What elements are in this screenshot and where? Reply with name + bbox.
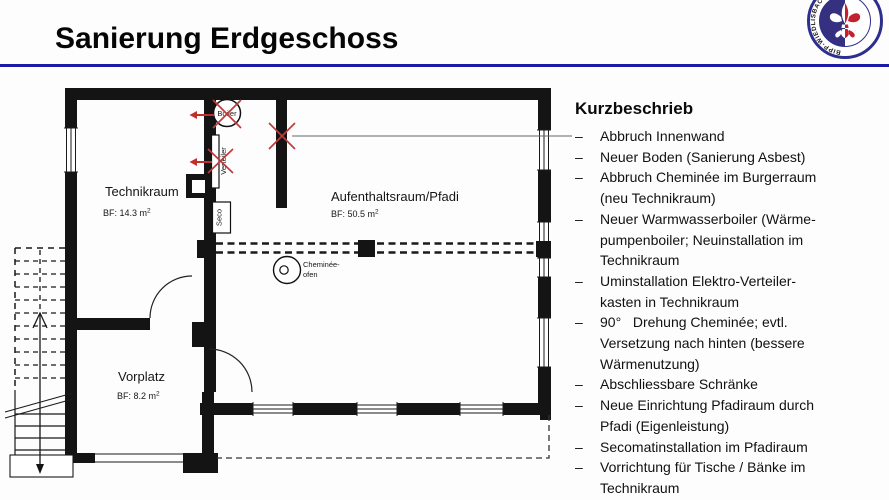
title-rule <box>0 64 889 67</box>
beam-dashed-line <box>197 240 551 258</box>
dash-bullet: – <box>575 271 583 292</box>
page-title: Sanierung Erdgeschoss <box>55 20 398 58</box>
list-item-text: Neue Einrichtung Pfadiraum durch Pfadi (… <box>600 397 814 434</box>
windows-bottom-wall <box>253 402 503 416</box>
dash-bullet: – <box>575 437 583 458</box>
list-item: –Neuer Boden (Sanierung Asbest) <box>573 147 887 168</box>
dash-bullet: – <box>575 312 583 333</box>
list-item: –Neuer Warmwasserboiler (Wärme- pumpenbo… <box>573 209 887 271</box>
cheminee-label-line2: ofen <box>303 270 318 279</box>
list-item-text: Abschliessbare Schränke <box>600 376 758 392</box>
room-labels: Technikraum BF: 14.3 m2 Aufenthaltsraum/… <box>103 184 459 401</box>
dash-bullet: – <box>575 167 583 188</box>
door-arc-technikraum <box>150 276 192 318</box>
list-item-text: Vorrichtung für Tische / Bänke im Techni… <box>600 459 805 496</box>
list-item: –Vorrichtung für Tische / Bänke im Techn… <box>573 457 887 498</box>
dash-bullet: – <box>575 395 583 416</box>
dash-bullet: – <box>575 126 583 147</box>
scout-badge-logo: BIPP-WIEDLISBACH <box>803 0 887 62</box>
room-area-technikraum: BF: 14.3 m2 <box>103 208 151 219</box>
slide: Sanierung Erdgeschoss BIPP-WIEDLISBACH <box>0 0 889 500</box>
list-item-text: Secomatinstallation im Pfadiraum <box>600 439 808 455</box>
list-item-text: 90° Drehung Cheminée; evtl. Versetzung n… <box>600 314 805 371</box>
list-item: –90° Drehung Cheminée; evtl. Versetzung … <box>573 312 887 374</box>
room-area-aufenthaltsraum: BF: 50.5 m2 <box>331 209 379 220</box>
kurzbeschrieb-heading: Kurzbeschrieb <box>575 98 887 120</box>
list-item: –Abschliessbare Schränke <box>573 374 887 395</box>
staircase <box>5 248 73 477</box>
cheminee-label-line1: Cheminée- <box>303 260 340 269</box>
seco-label: Seco <box>215 209 224 226</box>
floor-plan: Boiler Verteiler Seco Cheminée- ofen Tec… <box>0 80 572 500</box>
dash-bullet: – <box>575 147 583 168</box>
kurzbeschrieb-panel: Kurzbeschrieb –Abbruch Innenwand –Neuer … <box>573 98 887 499</box>
list-item-text: Abbruch Innenwand <box>600 128 725 144</box>
cheminee-ofen-symbol <box>274 257 301 284</box>
kurzbeschrieb-list: –Abbruch Innenwand –Neuer Boden (Sanieru… <box>573 126 887 499</box>
verteiler-symbol <box>212 135 220 188</box>
list-item-text: Neuer Warmwasserboiler (Wärme- pumpenboi… <box>600 211 816 268</box>
room-label-technikraum: Technikraum <box>105 184 179 199</box>
list-item: –Neue Einrichtung Pfadiraum durch Pfadi … <box>573 395 887 436</box>
equipment-symbols: Boiler Verteiler Seco Cheminée- ofen <box>212 100 341 284</box>
dash-bullet: – <box>575 209 583 230</box>
list-item: –Abbruch Cheminée im Burgerraum (neu Tec… <box>573 167 887 208</box>
dash-bullet: – <box>575 374 583 395</box>
list-item-text: Neuer Boden (Sanierung Asbest) <box>600 149 805 165</box>
dash-bullet: – <box>575 457 583 478</box>
list-item-text: Uminstallation Elektro-Verteiler- kasten… <box>600 273 796 310</box>
list-item: –Secomatinstallation im Pfadiraum <box>573 437 887 458</box>
list-item: –Abbruch Innenwand <box>573 126 887 147</box>
list-item: –Uminstallation Elektro-Verteiler- kaste… <box>573 271 887 312</box>
list-item-text: Abbruch Cheminée im Burgerraum (neu Tech… <box>600 169 816 206</box>
entrance-opening <box>95 454 183 462</box>
room-label-aufenthaltsraum: Aufenthaltsraum/Pfadi <box>331 189 459 204</box>
terrace-dashed-outline <box>217 415 549 458</box>
window-left-wall <box>64 128 78 172</box>
room-area-vorplatz: BF: 8.2 m2 <box>117 391 160 402</box>
room-label-vorplatz: Vorplatz <box>118 369 165 384</box>
chimney-duct-symbol <box>192 180 205 193</box>
